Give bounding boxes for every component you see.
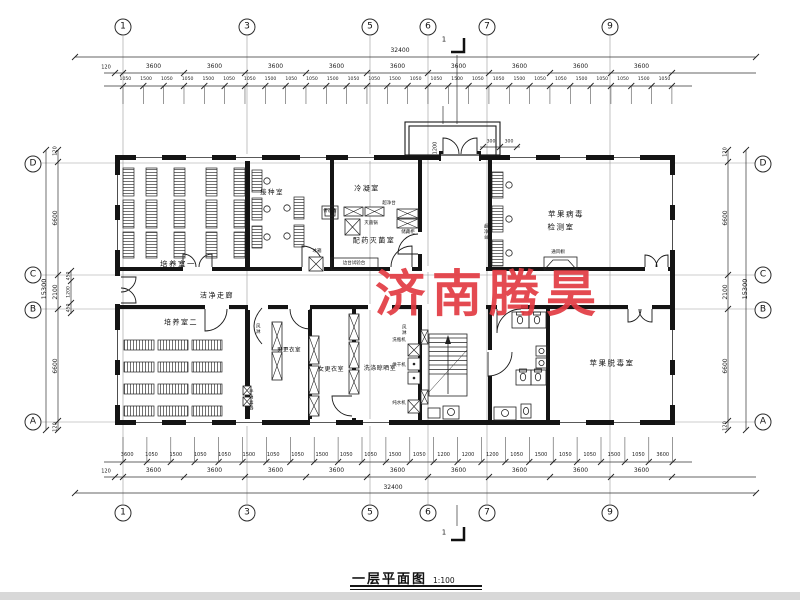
equipment-label-bottle-washer: 洗瓶机 xyxy=(392,339,406,344)
dim-right-d3: 6600 xyxy=(723,358,729,373)
dim-label: 1500 xyxy=(136,77,157,83)
dim-label: 1050 xyxy=(654,77,675,83)
dim-row-top-detail: 1050150010501050150010501050150010501050… xyxy=(115,77,675,83)
grid-bubble-right-C: C xyxy=(755,267,772,284)
dim-label: 3600 xyxy=(651,452,675,459)
grid-bubble-bottom-5: 5 xyxy=(362,505,379,522)
dim-label: 3600 xyxy=(489,63,550,70)
dim-label: 1500 xyxy=(571,77,592,83)
dim-label: 3600 xyxy=(306,467,367,474)
grid-bubble-left-B: B xyxy=(25,302,42,319)
grid-bubble-bottom-6: 6 xyxy=(420,505,437,522)
dim-row-bottom-bays: 360036003600360036003600360036003600 xyxy=(123,467,672,474)
equipment-label-side-bench: 边台试验台 xyxy=(343,262,366,267)
dim-entrance-1200: 1200 xyxy=(434,142,439,155)
room-label-culture1: 培养室一 xyxy=(160,260,196,268)
dim-label: 3600 xyxy=(367,467,428,474)
dim-label: 1500 xyxy=(310,452,334,459)
dim-label: 1050 xyxy=(530,77,551,83)
dim-entrance-300a: 300 xyxy=(487,141,496,146)
dim-label: 1050 xyxy=(239,77,260,83)
grid-bubble-top-6: 6 xyxy=(420,19,437,36)
dim-label: 1500 xyxy=(529,452,553,459)
equipment-label-cabinet: 储藏柜 xyxy=(401,231,415,236)
equipment-label-air-shower2: 风淋 xyxy=(401,325,406,336)
dim-label: 1050 xyxy=(139,452,163,459)
dim-label: 3600 xyxy=(245,63,306,70)
dim-label: 1500 xyxy=(164,452,188,459)
grid-bubble-bottom-3: 3 xyxy=(239,505,256,522)
room-label-prep: 配药灭菌室 xyxy=(353,238,396,245)
watermark-text: 济南腾昊 xyxy=(375,254,603,326)
room-label-detox: 苹果脱毒室 xyxy=(590,359,635,367)
grid-bubble-left-D: D xyxy=(25,156,42,173)
grid-bubble-top-7: 7 xyxy=(479,19,496,36)
grid-bubble-top-5: 5 xyxy=(362,19,379,36)
dim-label: 1200 xyxy=(431,452,455,459)
section-label-bottom: 1 xyxy=(442,530,446,537)
dim-label: 3600 xyxy=(306,63,367,70)
dim-left-d3: 6600 xyxy=(53,358,59,373)
dim-top-overall: 32400 xyxy=(390,48,409,54)
dim-left-sub-1200: 1200 xyxy=(68,286,73,298)
dim-label: 1050 xyxy=(302,77,323,83)
dim-entrance-300b: 300 xyxy=(505,141,514,146)
title-underline-thick xyxy=(350,585,482,588)
equipment-label-clean-bench: 超净台 xyxy=(382,202,396,207)
equipment-label-air-shower1: 风淋 xyxy=(255,324,260,335)
dim-right-d2: 2100 xyxy=(723,284,729,299)
dim-label: 3600 xyxy=(428,467,489,474)
dim-row-top-bays: 360036003600360036003600360036003600 xyxy=(123,63,672,70)
dim-label: 1500 xyxy=(447,77,468,83)
dim-label: 3600 xyxy=(245,467,306,474)
dim-label: 1050 xyxy=(426,77,447,83)
dim-left-e2: 120 xyxy=(54,422,59,432)
dim-label: 1050 xyxy=(405,77,426,83)
dim-label: 3600 xyxy=(489,467,550,474)
grid-bubble-right-D: D xyxy=(755,156,772,173)
dim-label: 1050 xyxy=(613,77,634,83)
dim-top-edge: 120 xyxy=(101,66,111,71)
dim-label: 1500 xyxy=(237,452,261,459)
dim-label: 3600 xyxy=(184,63,245,70)
title-underline-thin xyxy=(350,589,482,590)
floorplan-page: 1 3 5 6 7 9 1 3 5 6 7 9 D C B A D C B A … xyxy=(0,0,800,600)
dim-label: 1050 xyxy=(364,77,385,83)
room-label-condensation: 冷凝室 xyxy=(354,186,380,193)
dim-right-d1: 6600 xyxy=(723,210,729,225)
dim-label: 1500 xyxy=(260,77,281,83)
dim-label: 1050 xyxy=(407,452,431,459)
entrance-vestibule xyxy=(405,122,500,155)
dim-label: 1050 xyxy=(156,77,177,83)
dim-label: 1050 xyxy=(281,77,302,83)
dim-label: 1050 xyxy=(261,452,285,459)
dim-label: 3600 xyxy=(367,63,428,70)
dim-label: 1050 xyxy=(285,452,309,459)
dim-label: 3600 xyxy=(123,467,184,474)
room-label-women-change: 女更衣室 xyxy=(318,367,344,373)
room-label-corridor: 洁净走廊 xyxy=(200,293,234,300)
dim-bottom-overall: 32400 xyxy=(383,485,402,491)
room-label-virus-test-2: 检测室 xyxy=(548,223,575,231)
equipment-label-clean-bench2: 超净台 xyxy=(483,224,488,241)
equipment-label-water-purifier: 纯水机 xyxy=(392,402,406,407)
dim-label: 1500 xyxy=(383,452,407,459)
dim-label: 3600 xyxy=(184,467,245,474)
equipment-label-hand-sanitizer: 手消毒器 xyxy=(248,389,253,411)
dim-row-bottom-detail: 3600105015001050105015001050105015001050… xyxy=(115,452,675,459)
dim-label: 3600 xyxy=(115,452,139,459)
dim-label: 1050 xyxy=(467,77,488,83)
dim-label: 1500 xyxy=(509,77,530,83)
dim-left-e1: 120 xyxy=(54,146,59,156)
grid-bubble-top-9: 9 xyxy=(602,19,619,36)
dim-label: 1050 xyxy=(592,77,613,83)
room-label-men-change: 男更衣室 xyxy=(277,348,301,354)
dim-label: 3600 xyxy=(550,467,611,474)
grid-bubble-bottom-7: 7 xyxy=(479,505,496,522)
dim-label: 3600 xyxy=(611,63,672,70)
grid-bubble-left-A: A xyxy=(25,414,42,431)
dim-label: 1050 xyxy=(358,452,382,459)
equipment-label-fridge: 冰箱 xyxy=(313,250,322,255)
dim-bottom-edge: 120 xyxy=(101,470,111,475)
dim-label: 1500 xyxy=(385,77,406,83)
equipment-label-dryer: 烘干机 xyxy=(392,364,406,369)
grid-bubble-bottom-1: 1 xyxy=(115,505,132,522)
dim-label: 1050 xyxy=(550,77,571,83)
window-bottom-strip xyxy=(0,592,800,600)
dim-label: 1050 xyxy=(334,452,358,459)
section-label-top: 1 xyxy=(442,37,446,44)
dim-label: 1500 xyxy=(633,77,654,83)
room-label-culture2: 培养室二 xyxy=(164,320,198,327)
dim-right-overall: 15300 xyxy=(742,279,749,300)
dim-left-sub-450a: 450 xyxy=(68,272,73,281)
dim-label: 1200 xyxy=(480,452,504,459)
dim-left-d2: 2100 xyxy=(53,284,59,299)
grid-bubble-top-1: 1 xyxy=(115,19,132,36)
dim-label: 1050 xyxy=(578,452,602,459)
grid-bubble-bottom-9: 9 xyxy=(602,505,619,522)
dim-label: 3600 xyxy=(550,63,611,70)
dim-label: 1050 xyxy=(115,77,136,83)
dim-label: 1050 xyxy=(505,452,529,459)
room-label-inoculation: 接种室 xyxy=(260,189,284,196)
dim-label: 1500 xyxy=(322,77,343,83)
dim-label: 1500 xyxy=(602,452,626,459)
dim-left-overall: 15300 xyxy=(41,279,48,300)
dim-label: 1050 xyxy=(212,452,236,459)
room-label-virus-test-1: 苹果病毒 xyxy=(548,210,584,218)
dim-right-e2: 120 xyxy=(724,421,729,431)
equipment-label-pass-window: 传递窗 xyxy=(323,210,337,215)
dim-label: 1050 xyxy=(488,77,509,83)
dim-label: 1050 xyxy=(343,77,364,83)
dim-right-e1: 120 xyxy=(724,147,729,157)
dim-label: 1050 xyxy=(188,452,212,459)
dim-label: 3600 xyxy=(123,63,184,70)
grid-bubble-left-C: C xyxy=(25,267,42,284)
dim-left-sub-450b: 450 xyxy=(68,304,73,313)
grid-bubble-right-A: A xyxy=(755,414,772,431)
dim-label: 1050 xyxy=(177,77,198,83)
grid-bubble-right-B: B xyxy=(755,302,772,319)
dim-label: 1200 xyxy=(456,452,480,459)
dim-label: 1050 xyxy=(553,452,577,459)
dim-label: 3600 xyxy=(428,63,489,70)
dim-label: 1050 xyxy=(626,452,650,459)
equipment-label-sterilizer: 灭菌锅 xyxy=(364,222,378,227)
dim-label: 1050 xyxy=(219,77,240,83)
grid-bubble-top-3: 3 xyxy=(239,19,256,36)
dim-label: 1500 xyxy=(198,77,219,83)
dim-label: 3600 xyxy=(611,467,672,474)
dim-left-d1: 6600 xyxy=(53,210,59,225)
